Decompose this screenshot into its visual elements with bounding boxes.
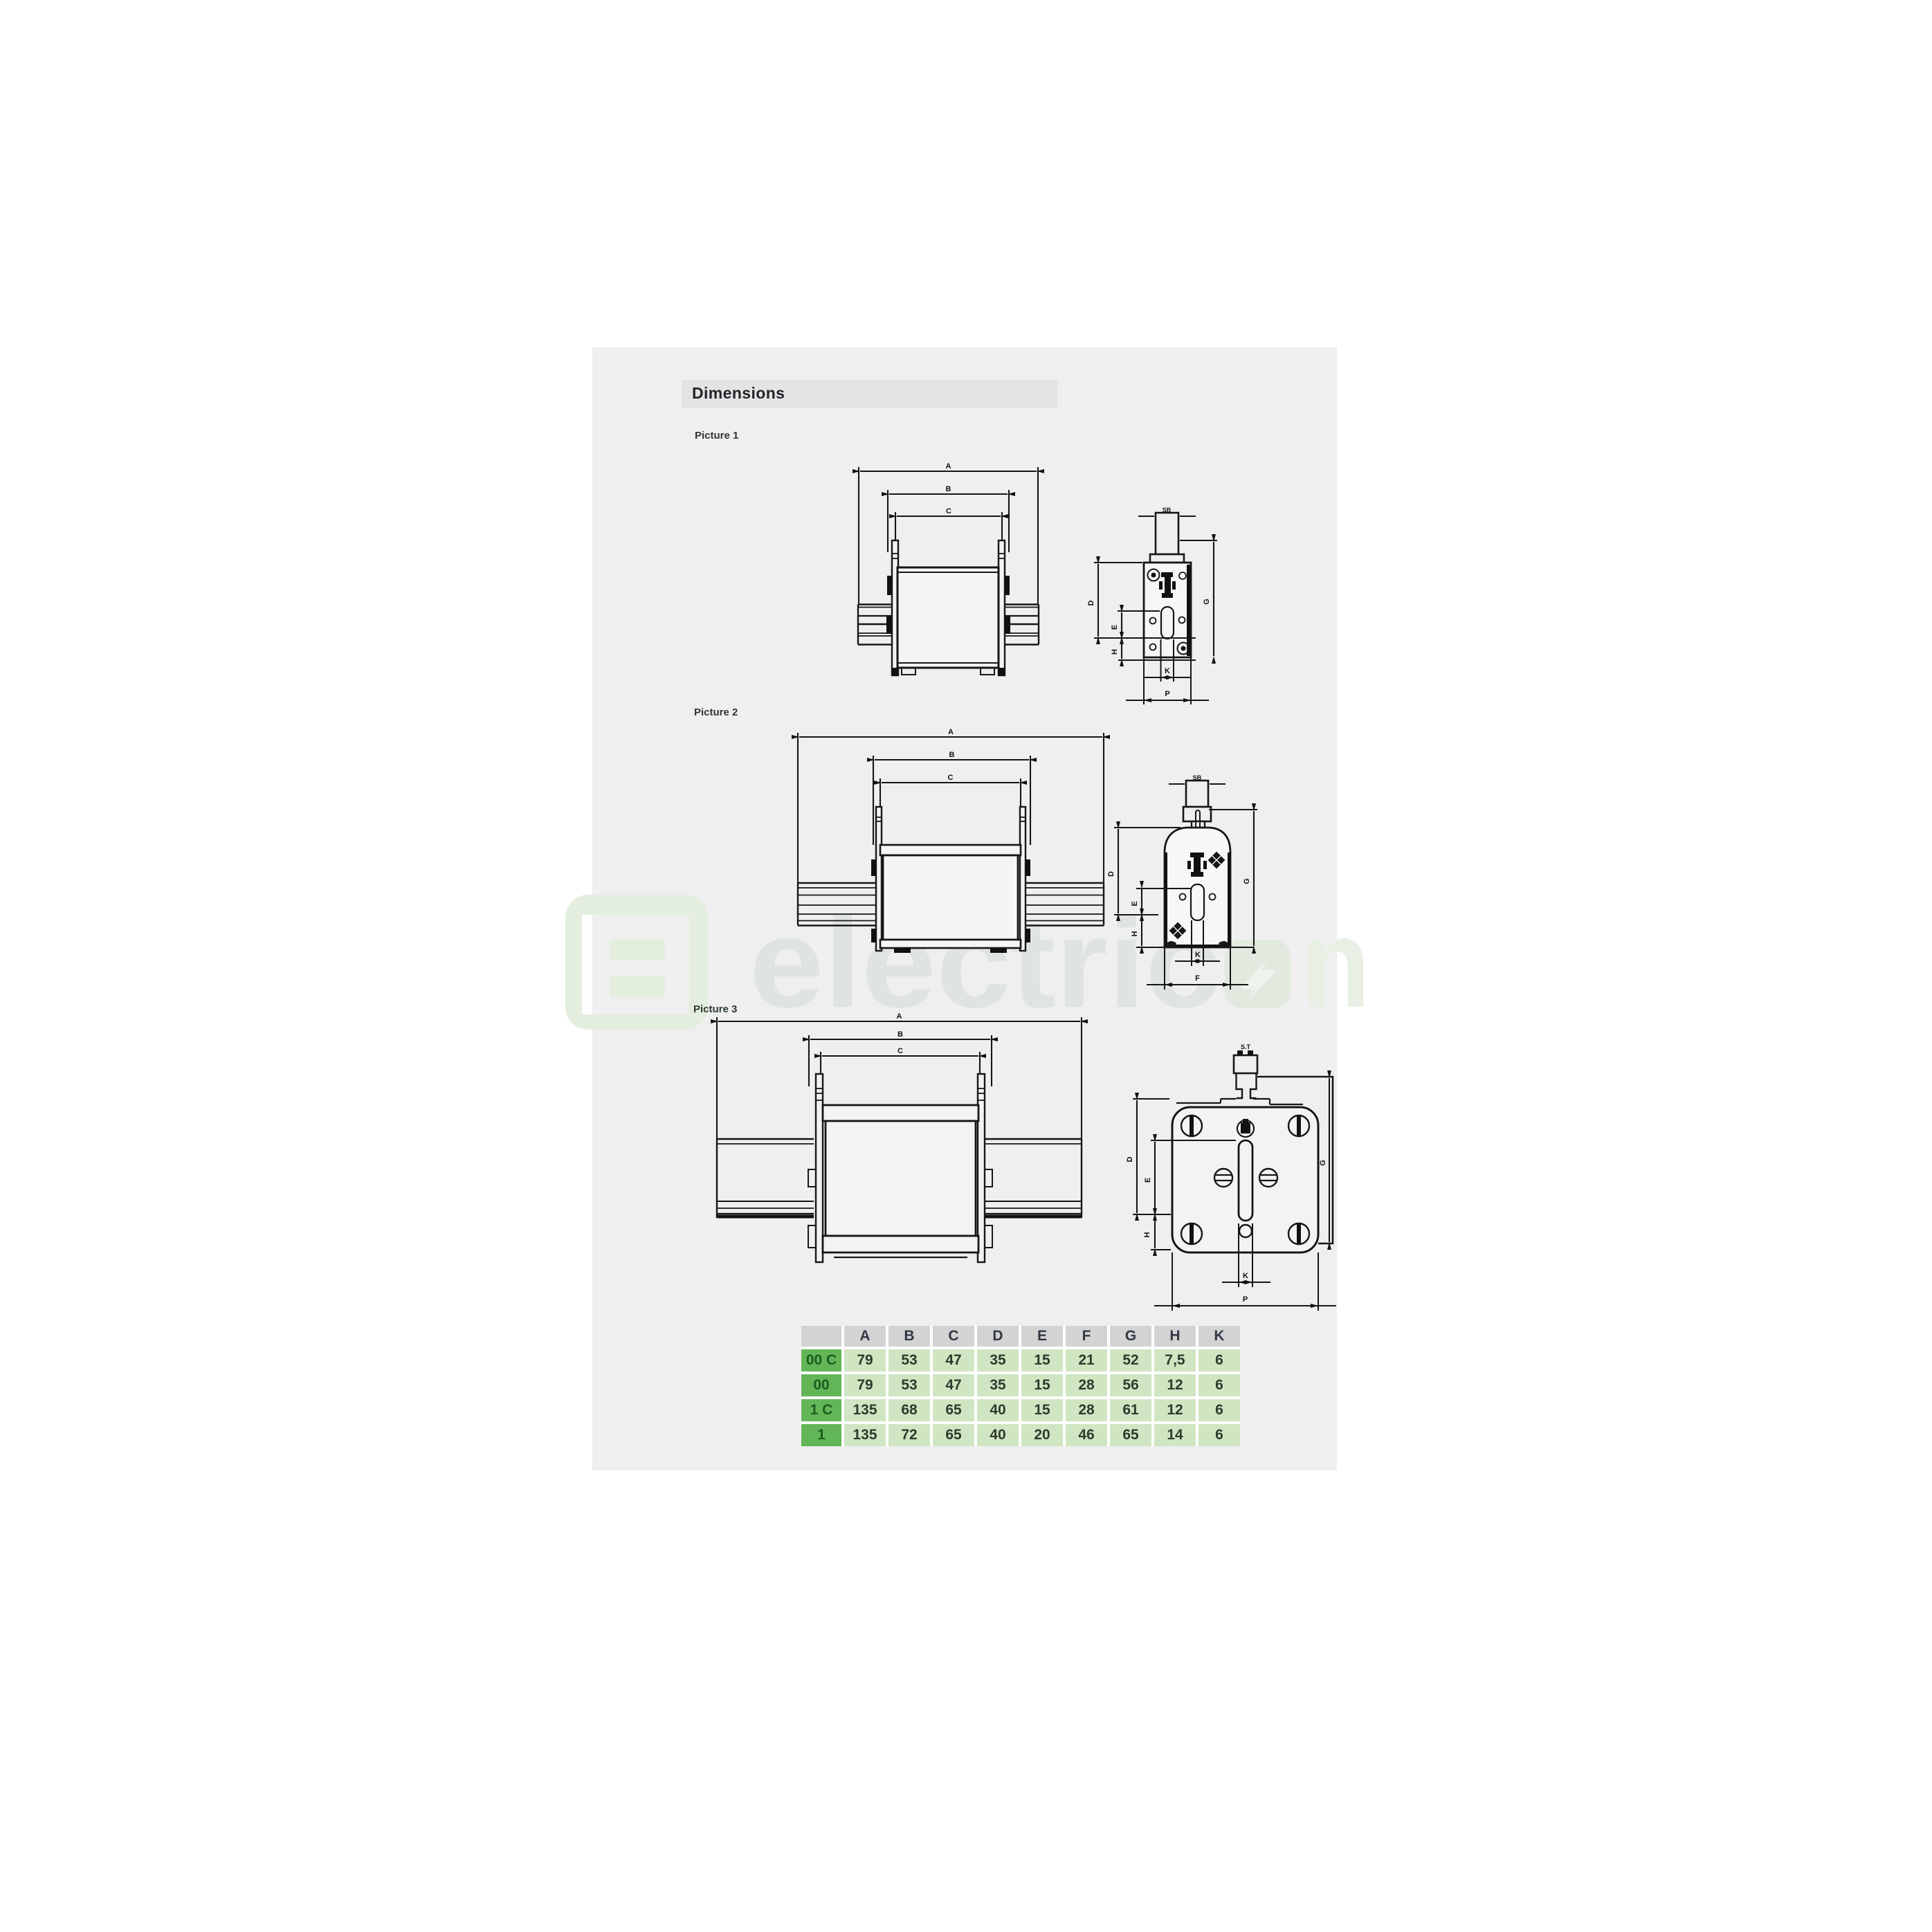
svg-text:H: H xyxy=(1111,649,1119,655)
svg-text:C: C xyxy=(948,774,954,782)
svg-text:D: D xyxy=(1087,600,1095,605)
svg-text:H: H xyxy=(1131,931,1139,936)
svg-text:E: E xyxy=(1131,901,1139,906)
svg-text:B: B xyxy=(946,485,951,493)
svg-text:C: C xyxy=(946,507,951,516)
svg-text:G: G xyxy=(1319,1160,1327,1166)
svg-text:P: P xyxy=(1165,690,1169,698)
svg-text:K: K xyxy=(1165,667,1170,675)
svg-text:D: D xyxy=(1126,1156,1134,1162)
svg-text:K: K xyxy=(1195,951,1201,959)
svg-text:A: A xyxy=(946,462,951,471)
svg-text:E: E xyxy=(1144,1178,1152,1183)
svg-text:A: A xyxy=(948,728,954,736)
svg-text:B: B xyxy=(949,751,955,759)
svg-text:F: F xyxy=(1195,974,1200,983)
svg-text:E: E xyxy=(1111,625,1119,630)
svg-text:P: P xyxy=(1243,1295,1248,1304)
svg-text:B: B xyxy=(897,1030,903,1039)
svg-text:K: K xyxy=(1243,1272,1248,1280)
svg-text:n: n xyxy=(1302,891,1370,1034)
svg-text:D: D xyxy=(1107,871,1115,877)
svg-text:G: G xyxy=(1203,599,1211,605)
svg-text:G: G xyxy=(1243,878,1251,884)
svg-text:A: A xyxy=(897,1012,902,1021)
svg-text:C: C xyxy=(897,1047,903,1055)
svg-text:S.T: S.T xyxy=(1241,1044,1251,1050)
svg-text:H: H xyxy=(1143,1232,1151,1237)
